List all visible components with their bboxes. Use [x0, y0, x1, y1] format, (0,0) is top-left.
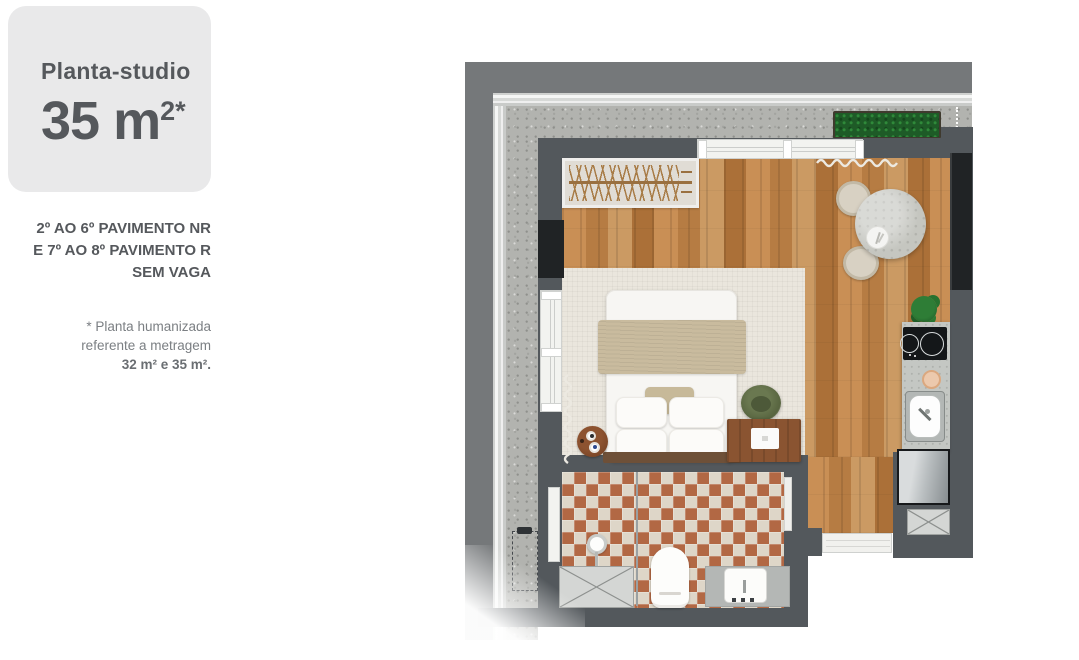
wood-floor-entry	[805, 457, 900, 533]
balcony-planter	[833, 111, 941, 139]
floor-plan	[0, 0, 1079, 660]
cooktop-dot	[914, 355, 916, 357]
bed-headboard	[603, 452, 741, 463]
cooktop-burner	[920, 332, 944, 356]
window-glass-line	[702, 151, 860, 152]
tv-panel	[538, 220, 564, 278]
dining-table	[855, 189, 926, 259]
bed-pillow	[669, 397, 724, 428]
toilet	[651, 547, 689, 608]
desk-chair	[741, 385, 781, 421]
left-window	[540, 290, 562, 412]
notepad	[751, 428, 779, 449]
cooktop	[903, 327, 947, 360]
faucet-handle	[750, 598, 754, 602]
vanity-spout	[743, 580, 746, 593]
wardrobe-rail	[569, 181, 692, 184]
shower-head	[587, 534, 607, 554]
sink-drain	[925, 409, 930, 414]
entry-door	[822, 533, 892, 553]
side-table	[577, 426, 608, 457]
ac-unit-icon	[517, 527, 532, 534]
door-line	[826, 540, 890, 541]
wardrobe	[562, 158, 699, 208]
top-window	[697, 139, 863, 159]
cooktop-burner	[900, 334, 919, 353]
faucet-handle	[741, 598, 745, 602]
kitchen-plant	[911, 296, 937, 322]
desk	[727, 419, 801, 462]
cup-dot	[580, 439, 584, 443]
floor-plan-page: Planta-studio 35 m2* 2º AO 6º PAVIMENTO …	[0, 0, 1079, 660]
door-line	[826, 546, 890, 547]
bed-blanket	[598, 320, 746, 374]
faucet-handle	[732, 598, 736, 602]
plate	[866, 226, 889, 249]
facade-band-top	[465, 62, 972, 93]
window-jamb	[783, 140, 792, 159]
window-jamb	[698, 140, 707, 159]
window-jamb	[541, 348, 562, 357]
wardrobe-shelf	[681, 171, 692, 173]
window-jamb	[541, 403, 562, 412]
cooktop-dot	[909, 354, 911, 356]
cup-dot	[593, 445, 597, 449]
molding-top	[493, 93, 972, 106]
curtain-top	[816, 157, 902, 169]
window-glass-line	[702, 147, 860, 148]
wall-entry-left-jamb	[805, 528, 822, 556]
vanity	[705, 566, 790, 607]
curtain-left	[562, 374, 574, 466]
tall-cabinet-panel	[950, 153, 972, 290]
desk-chair-seat	[751, 396, 771, 412]
window-jamb	[541, 291, 562, 300]
toilet-seat-line	[659, 592, 681, 595]
notepad-mark	[762, 436, 768, 441]
bed-pillow	[616, 397, 667, 428]
kitchen-sink	[905, 391, 945, 442]
survey-dotted-marker	[956, 107, 958, 128]
cup-dot	[590, 434, 594, 438]
fridge	[897, 449, 950, 505]
shower-glass-partition	[636, 472, 638, 606]
utility-shaft-kitchen	[907, 509, 950, 535]
wardrobe-shelf	[681, 191, 692, 193]
bathroom-door	[784, 477, 792, 531]
fade-overlay	[450, 545, 585, 660]
bowl	[922, 370, 941, 389]
